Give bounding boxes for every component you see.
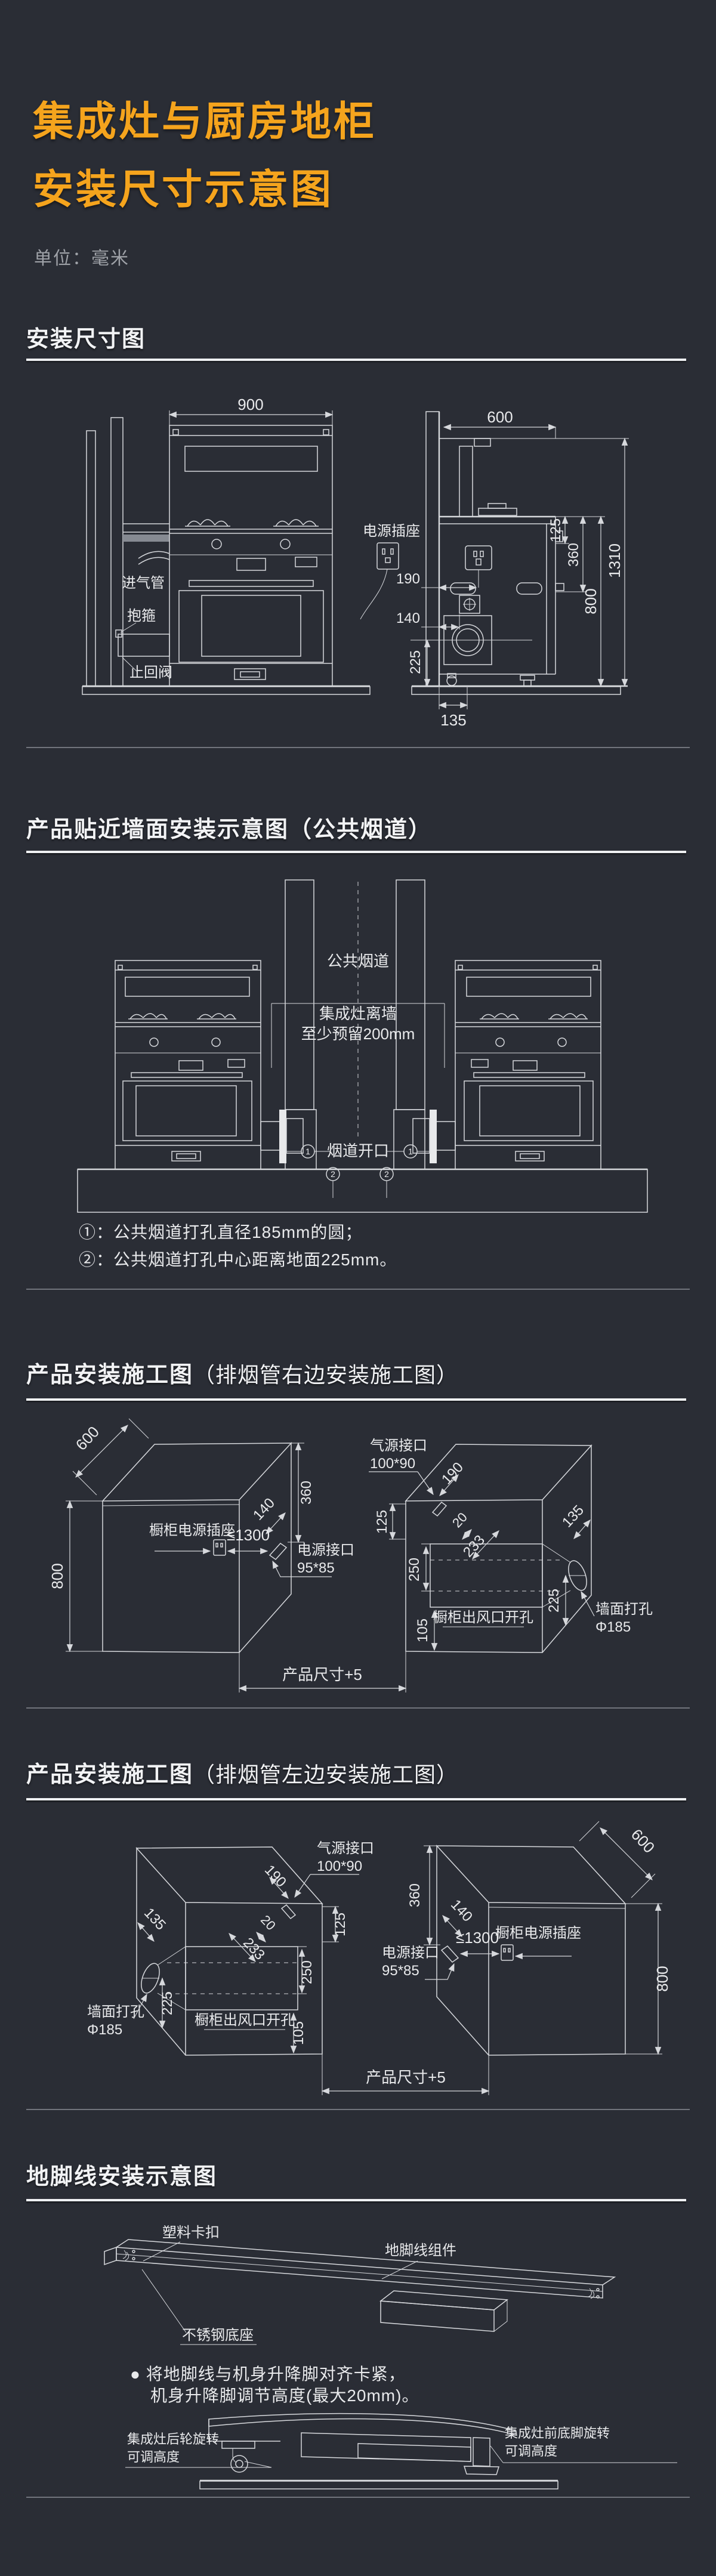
power-port-label2-m: 95*85	[382, 1963, 419, 1979]
dim-190-iso: 190	[439, 1459, 467, 1488]
section4-heading-sub: （排烟管左边安装施工图）	[193, 1762, 458, 1787]
dim-125-m: 125	[332, 1913, 348, 1936]
outlet-cutout-label: 橱柜出风口开孔	[433, 1610, 533, 1626]
shared-flue-drawing: 公共烟道 集成灶离墙 至少预留200mm	[0, 871, 716, 1217]
baseboard-rail	[104, 2240, 615, 2299]
floor-band	[78, 1169, 647, 1212]
baseboard-assembly-drawing: 塑料卡扣 地脚线组件 不锈钢底座	[0, 2214, 716, 2361]
page-title-line2: 安装尺寸示意图	[33, 169, 334, 210]
dim-135: 135	[440, 711, 466, 729]
steel-base-label: 不锈钢底座	[182, 2327, 254, 2343]
shared-flue-label: 公共烟道	[327, 952, 389, 970]
dim-1310: 1310	[606, 543, 624, 578]
power-port-label1: 电源接口	[297, 1542, 354, 1558]
cabinet-socket-icon	[214, 1540, 226, 1555]
dim-800-left: 800	[48, 1563, 66, 1589]
section5-heading: 地脚线安装示意图	[26, 2166, 217, 2188]
stove-feet-drawing: 集成灶后轮旋转 可调高度 集成灶前底脚旋转 可调高度	[0, 2404, 716, 2497]
section3-heading-sub: （排烟管右边安装施工图）	[193, 1363, 458, 1387]
clearance-label-line2: 至少预留200mm	[301, 1025, 415, 1043]
left-stove-front	[115, 960, 261, 1169]
gas-port-label2-m: 100*90	[317, 1858, 362, 1874]
dim-20-m: 20	[258, 1912, 279, 1933]
dim-360: 360	[566, 543, 582, 567]
dim-225-m: 225	[159, 1991, 175, 2015]
dim-225: 225	[408, 650, 424, 674]
power-socket-icon	[360, 543, 399, 619]
gas-port-label1-m: 气源接口	[317, 1840, 374, 1857]
check-valve-label: 止回阀	[129, 665, 172, 681]
flue-opening-label: 烟道开口	[327, 1142, 389, 1160]
gas-port-label1: 气源接口	[370, 1438, 427, 1454]
rear-wheel-label-line1: 集成灶后轮旋转	[127, 2432, 219, 2447]
cabinet-socket-label-m: 橱柜电源插座	[495, 1925, 581, 1941]
section2-heading: 产品贴近墙面安装示意图（公共烟道）	[26, 818, 432, 841]
front-foot-label-line1: 集成灶前底脚旋转	[505, 2426, 610, 2441]
dim-800: 800	[582, 588, 600, 614]
cabinet-socket-icon-m	[501, 1945, 513, 1960]
dim-600-left: 600	[72, 1423, 103, 1454]
dim-190-m: 190	[261, 1862, 289, 1891]
section4-heading: 产品安装施工图（排烟管左边安装施工图）	[26, 1763, 458, 1786]
floor-line	[200, 2481, 558, 2489]
power-port-slot	[270, 1543, 286, 1559]
side-view-stove	[411, 438, 564, 686]
dim-233-m: 233	[240, 1935, 268, 1963]
dim-140: 140	[396, 610, 420, 626]
section1-divider	[26, 747, 690, 748]
dim-125: 125	[548, 518, 564, 542]
product-size-label: 产品尺寸+5	[282, 1666, 362, 1684]
section5-divider	[26, 2497, 690, 2498]
section1-heading: 安装尺寸图	[26, 328, 146, 351]
front-view-floor	[82, 686, 370, 694]
flue-note-1: ①：公共烟道打孔直径185mm的圆；	[79, 1219, 362, 1243]
baseboard-note-line2: 机身升降脚调节高度(最大20mm)。	[150, 2383, 419, 2407]
dim-1300: ≤1300	[227, 1526, 270, 1544]
construction-drawing-left-vent: 气源接口 100*90 190 125 20 233 135 225 250 1…	[0, 1820, 716, 2100]
unit-label: 单位：毫米	[34, 243, 129, 270]
section2-rule	[26, 851, 686, 853]
dim-225-iso: 225	[546, 1589, 562, 1613]
wall-hole-label1-m: 墙面打孔	[87, 2004, 144, 2020]
product-size-label-m: 产品尺寸+5	[366, 2068, 446, 2086]
front-foot-label-line2: 可调高度	[505, 2444, 557, 2458]
section4-rule	[26, 1798, 686, 1800]
wall-hole-label2-m: Φ185	[87, 2022, 122, 2038]
wall-hole-label2: Φ185	[595, 1619, 631, 1635]
dim-250-m: 250	[299, 1960, 315, 1984]
cabinet-box-right-m	[437, 1846, 625, 2055]
svg-text:2: 2	[331, 1169, 335, 1179]
plastic-clip-label: 塑料卡扣	[162, 2225, 220, 2241]
power-port-label1-m: 电源接口	[382, 1945, 439, 1961]
section3-divider	[26, 1707, 690, 1709]
svg-text:1: 1	[408, 1147, 413, 1156]
stove-side-profile	[209, 2414, 516, 2475]
outlet-cutout-label-m: 橱柜出风口开孔	[195, 2012, 295, 2028]
installation-manual-page: { "page": {"bg": "#2a2d35", "accent": "#…	[0, 0, 716, 2576]
section3-heading-main: 产品安装施工图	[26, 1363, 193, 1388]
section3-heading: 产品安装施工图（排烟管右边安装施工图）	[26, 1364, 458, 1386]
rear-wheel-label-line2: 可调高度	[127, 2450, 180, 2464]
dim-135-iso: 135	[559, 1502, 587, 1531]
svg-text:1: 1	[305, 1147, 310, 1156]
gas-port-label2: 100*90	[370, 1456, 415, 1472]
cabinet-socket-label: 橱柜电源插座	[149, 1522, 235, 1539]
baseboard-support-block	[381, 2291, 507, 2331]
power-port-label2: 95*85	[297, 1560, 335, 1576]
dim-900: 900	[237, 396, 263, 413]
front-view-stove	[169, 425, 332, 686]
side-view-wall	[426, 412, 439, 686]
dim-125-iso: 125	[374, 1510, 390, 1534]
dim-140-iso: 140	[250, 1495, 278, 1524]
dim-360: 360	[298, 1481, 314, 1505]
section4-divider	[26, 2109, 690, 2110]
baseboard-note-line1: ● 将地脚线与机身升降脚对齐卡紧，	[130, 2361, 406, 2385]
dimension-drawing: 900 进气管 抱箍 止回阀 600 125 360 800 1310 190	[0, 382, 716, 749]
cabinet-box-left	[103, 1443, 291, 1653]
callout-marker-1-right: 1	[404, 1145, 417, 1158]
intake-pipe-label: 进气管	[122, 575, 165, 591]
dim-140-m: 140	[447, 1897, 476, 1925]
baseboard-assembly-label: 地脚线组件	[385, 2243, 456, 2259]
clearance-label-line1: 集成灶离墙	[319, 1005, 397, 1023]
right-flue-duct	[413, 1110, 455, 1163]
flue-note-2: ②：公共烟道打孔中心距离地面225mm。	[79, 1247, 397, 1271]
side-view-floor	[412, 686, 628, 694]
clamp-label: 抱箍	[127, 608, 156, 624]
construction-drawing-right-vent: 600 800 360 140 橱柜电源插座 ≤1300 电源接口 95*85 …	[0, 1417, 716, 1697]
front-view-flue-columns	[87, 418, 123, 686]
section2-divider	[26, 1289, 690, 1290]
page-title-line1: 集成灶与厨房地柜	[33, 101, 376, 142]
section4-heading-main: 产品安装施工图	[26, 1762, 193, 1787]
dim-233: 233	[460, 1532, 488, 1561]
dim-250: 250	[406, 1558, 422, 1582]
dim-800-m: 800	[653, 1966, 671, 1991]
wall-hole-label1: 墙面打孔	[595, 1601, 653, 1617]
section1-rule	[26, 359, 686, 361]
left-flue-duct	[261, 1110, 303, 1163]
dim-135-m: 135	[141, 1905, 169, 1933]
section3-rule	[26, 1398, 686, 1401]
dim-20: 20	[449, 1509, 470, 1530]
dim-360-m: 360	[407, 1883, 423, 1907]
dim-190: 190	[396, 571, 420, 587]
dim-600-m: 600	[628, 1826, 659, 1857]
power-port-slot-m	[442, 1946, 458, 1962]
right-stove-front	[455, 960, 601, 1169]
dim-600: 600	[487, 408, 513, 426]
svg-text:2: 2	[384, 1169, 389, 1179]
section5-rule	[26, 2199, 686, 2201]
power-socket-label: 电源插座	[363, 523, 420, 539]
dim-1300-m: ≤1300	[456, 1929, 499, 1947]
dim-105: 105	[415, 1619, 431, 1642]
